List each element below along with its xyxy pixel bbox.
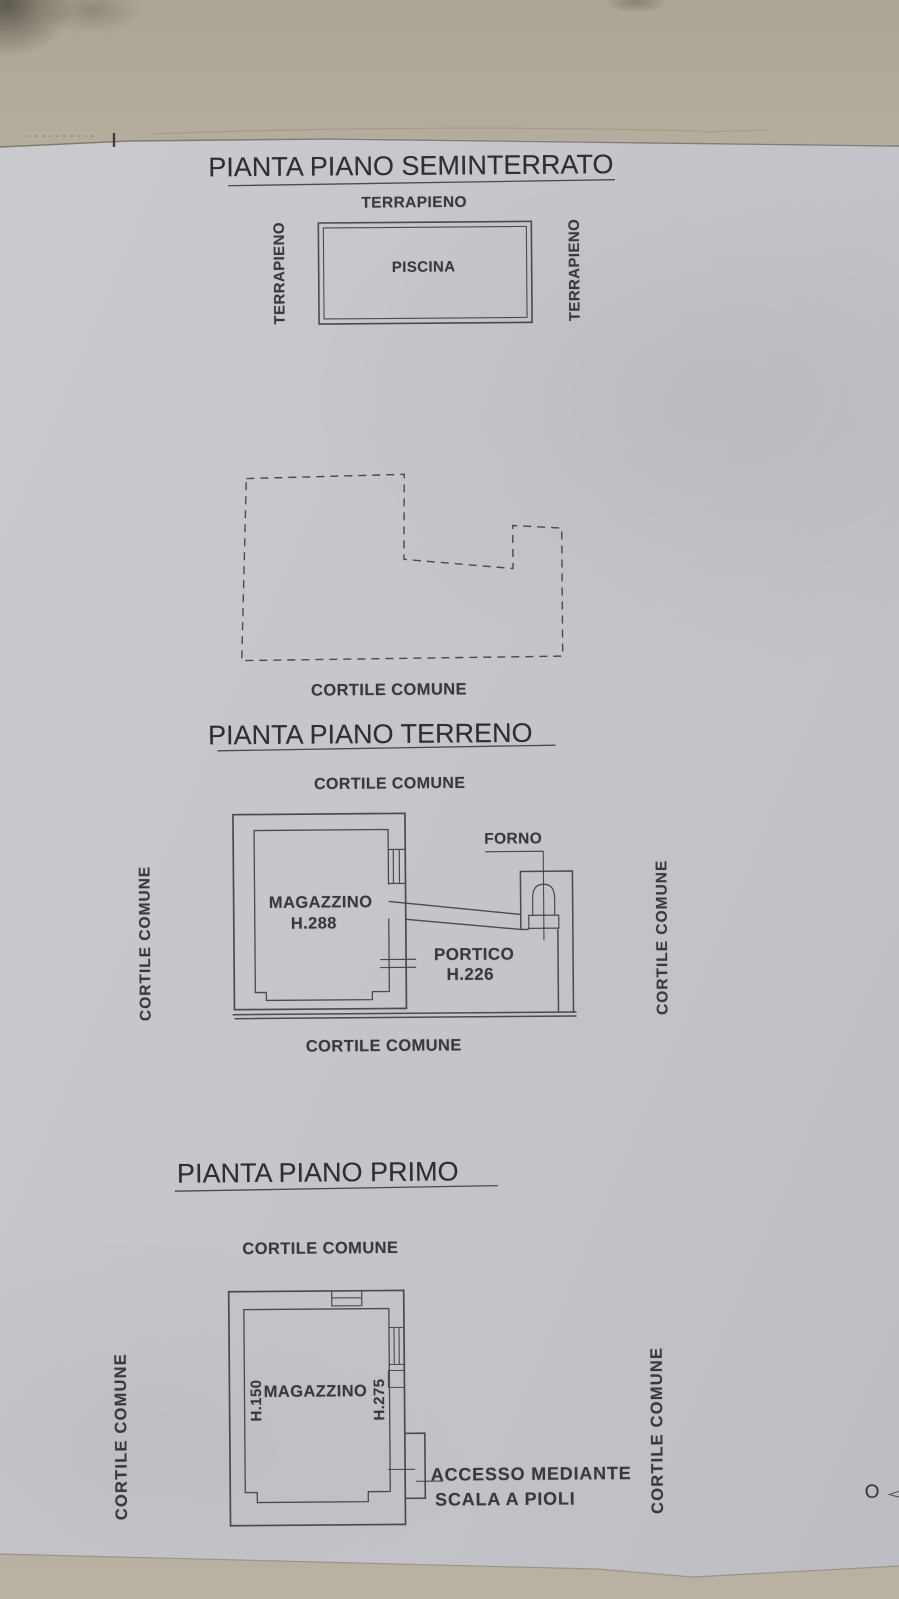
portico-passage-lines	[389, 900, 521, 930]
margin-wedge-mark	[889, 1489, 899, 1498]
forno-niche-walls	[520, 871, 573, 1012]
drawing-content: PIANTA PIANO SEMINTERRATO TERRAPIENO TER…	[0, 0, 899, 1599]
portico-label: PORTICO	[434, 945, 514, 966]
plan-linework	[0, 0, 899, 1599]
window-sill	[388, 1370, 404, 1387]
primo-cortile-top-label: CORTILE COMUNE	[242, 1239, 398, 1259]
terrapieno-left-label: TERRAPIENO	[271, 222, 289, 324]
terreno-cortile-left-label: CORTILE COMUNE	[136, 866, 155, 1021]
forno-leader-line	[543, 851, 544, 940]
forno-label: FORNO	[484, 830, 542, 848]
terreno-magazzino-label: MAGAZZINO	[269, 893, 373, 913]
portico-height: H.226	[446, 965, 494, 985]
access-landing-box	[405, 1433, 426, 1498]
primo-height-right: H.275	[371, 1378, 388, 1420]
primo-title: PIANTA PIANO PRIMO	[177, 1156, 459, 1189]
seminterrato-cortile-label: CORTILE COMUNE	[311, 680, 467, 700]
primo-cortile-right-label: CORTILE COMUNE	[648, 1347, 668, 1514]
terrapieno-top-label: TERRAPIENO	[361, 194, 467, 213]
chimney-detail	[332, 1291, 362, 1306]
terreno-cortile-top-label: CORTILE COMUNE	[314, 775, 466, 794]
terreno-cortile-right-label: CORTILE COMUNE	[653, 860, 672, 1015]
accesso-label-line2: SCALA A PIOLI	[435, 1489, 576, 1511]
primo-magazzino-label: MAGAZZINO	[264, 1382, 368, 1402]
dashed-outline	[240, 473, 562, 661]
accesso-label-line1: ACCESSO MEDIANTE	[431, 1463, 632, 1486]
terreno-magazzino-height: H.288	[291, 914, 337, 933]
terreno-cortile-bottom-label: CORTILE COMUNE	[306, 1036, 462, 1056]
piscina-label: PISCINA	[392, 258, 456, 275]
door-opening-ticks	[380, 959, 416, 967]
primo-height-left: H.150	[248, 1379, 265, 1421]
seminterrato-title: PIANTA PIANO SEMINTERRATO	[208, 149, 613, 183]
floor-plan-photo: PIANTA PIANO SEMINTERRATO TERRAPIENO TER…	[0, 0, 899, 1599]
margin-o-mark: O	[865, 1482, 880, 1504]
basement-dashed-boundary	[240, 473, 562, 661]
first-floor-window	[389, 1327, 404, 1364]
first-floor-inner-wall	[244, 1308, 391, 1502]
terrapieno-right-label: TERRAPIENO	[566, 219, 584, 321]
margin-marks	[889, 1489, 899, 1498]
window-hatch	[388, 849, 405, 883]
ground-floor-base-line	[233, 1012, 577, 1019]
primo-cortile-left-label: CORTILE COMUNE	[112, 1353, 132, 1520]
terreno-title: PIANTA PIANO TERRENO	[208, 718, 533, 752]
